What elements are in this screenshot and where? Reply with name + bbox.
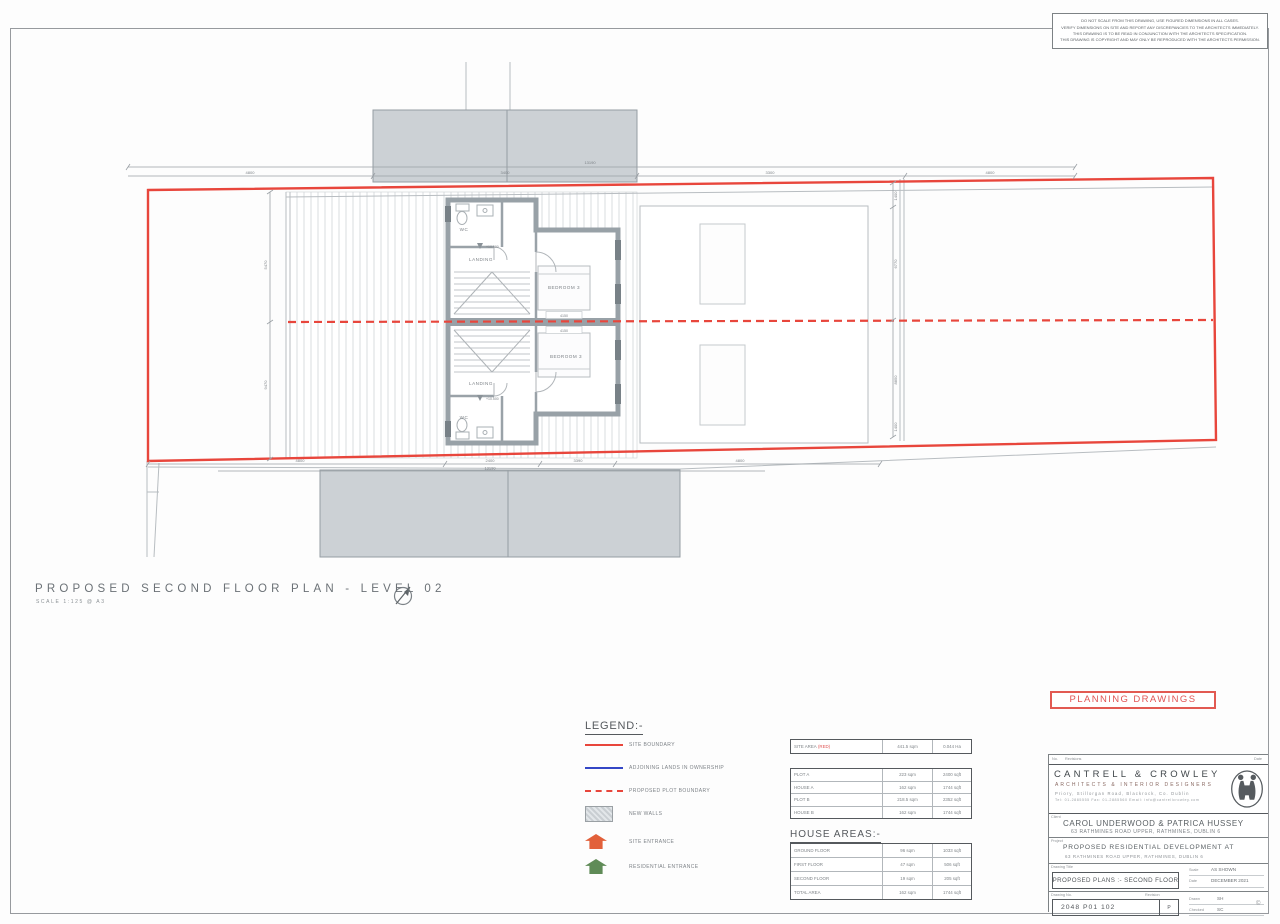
- dim-right: 6770: [893, 259, 898, 269]
- floor-name: SECOND FLOOR: [791, 872, 883, 885]
- plot-boundary-dash-icon: [585, 790, 623, 792]
- legend-label: PROPOSED PLOT BOUNDARY: [629, 788, 710, 794]
- floor-name: GROUND FLOOR: [791, 844, 883, 857]
- dim-bottom-seg: 2400: [486, 458, 496, 463]
- house-areas-table: GROUND FLOOR 96 sqm 1033 sqft FIRST FLOO…: [790, 843, 972, 900]
- table-row: HOUSE B 162 sqm 1744 sqft: [791, 806, 971, 819]
- plot-sqm: 223 sqm: [883, 769, 933, 781]
- client-panel: Client CAROL UNDERWOOD & PATRICA HUSSEY …: [1049, 814, 1268, 838]
- room-label-wc-top: WC: [460, 227, 469, 232]
- table-row: HOUSE A 162 sqm 1744 sqft: [791, 781, 971, 794]
- title-block: No. Revisions Date CANTRELL & CROWLEY AR…: [1048, 754, 1268, 912]
- room-label-wc-bottom: WC: [460, 415, 469, 420]
- legend-heading: LEGEND:-: [585, 720, 643, 735]
- floor-sqft: 1744 sqft: [933, 890, 971, 895]
- table-row: PLOT B 218.5 sqm 2352 sqft: [791, 793, 971, 806]
- table-row: TOTAL AREA 162 sqm 1744 sqft: [791, 885, 971, 899]
- dim-top-seg: 4800: [246, 170, 256, 175]
- checked-label: Checked: [1189, 908, 1204, 912]
- residential-entrance-arrow-icon: [585, 859, 607, 874]
- dim-bottom-seg: 4800: [296, 458, 306, 463]
- dim-left: 5470: [263, 260, 268, 270]
- legend-label: SITE BOUNDARY: [629, 742, 675, 748]
- legend-item-adjoining-lands: ADJOINING LANDS IN OWNERSHIP: [585, 765, 724, 771]
- dim-label: 4150: [560, 329, 568, 333]
- plot-sqm: 218.5 sqm: [883, 794, 933, 806]
- garden-plot: [640, 206, 868, 443]
- plot-name: HOUSE A: [791, 782, 883, 794]
- legend-label: RESIDENTIAL ENTRANCE: [629, 864, 699, 870]
- floor-sqft: 506 sqft: [933, 862, 971, 867]
- drawing-number-panel: Drawing No. Revision 2048 P01 102 P Draw…: [1049, 892, 1268, 918]
- copyright-mark: ©: [1256, 901, 1260, 907]
- dim-top-seg: 3400: [501, 170, 511, 175]
- site-area-label: SITE AREA: [794, 744, 817, 749]
- date-label: Date: [1189, 879, 1197, 883]
- legend-label: SITE ENTRANCE: [629, 839, 674, 845]
- drawing-number-value: 2048 P01 102: [1053, 900, 1159, 915]
- legend-label: ADJOINING LANDS IN OWNERSHIP: [629, 765, 724, 771]
- floor-sqm: 162 sqm: [883, 886, 933, 899]
- table-row: SITE AREA (RED) 441.5 sqm 0.044 Ha: [791, 740, 971, 753]
- dim-right: 1400: [893, 191, 898, 201]
- drawing-title-box: PROPOSED PLANS :- SECOND FLOOR: [1052, 872, 1179, 889]
- plot-sqft: 2352 sqft: [933, 797, 971, 802]
- floor-name: FIRST FLOOR: [791, 858, 883, 871]
- dim-right: 1400: [893, 422, 898, 432]
- project-line1: PROPOSED RESIDENTIAL DEVELOPMENT AT: [1063, 844, 1234, 851]
- room-label-bedroom-bottom: BEDROOM 3: [550, 354, 582, 359]
- plot-sqft: 1744 sqft: [933, 785, 971, 790]
- floor-name: TOTAL AREA: [791, 886, 883, 899]
- house-areas-heading-text: HOUSE AREAS:-: [790, 829, 881, 843]
- site-area-red-tag: (RED): [818, 744, 830, 749]
- plot-sqm: 162 sqm: [883, 807, 933, 819]
- site-area-sqm: 441.5 sqm: [883, 740, 933, 753]
- plot-name: PLOT B: [791, 794, 883, 806]
- divider: [1189, 887, 1264, 888]
- revisions-label: Revisions: [1065, 757, 1081, 761]
- dim-top-seg: 3300: [766, 170, 776, 175]
- dim-bottom-seg: 3390: [574, 458, 584, 463]
- divider: [1189, 915, 1264, 916]
- planning-drawings-stamp: PLANNING DRAWINGS: [1050, 691, 1216, 709]
- dim-label: 4150: [560, 314, 568, 318]
- architect-address: Priory, Stillorgan Road, Blackrock, Co. …: [1055, 791, 1190, 796]
- site-area-ha: 0.044 Ha: [933, 744, 971, 749]
- dim-bottom-seg: 4800: [736, 458, 746, 463]
- legend-item-plot-boundary: PROPOSED PLOT BOUNDARY: [585, 788, 710, 794]
- date-header-label: Date: [1254, 757, 1262, 761]
- floor-sqft: 205 sqft: [933, 876, 971, 881]
- architect-name: CANTRELL & CROWLEY: [1054, 769, 1221, 780]
- roof-block-bottom: [320, 470, 680, 557]
- legend-item-residential-entrance: RESIDENTIAL ENTRANCE: [585, 859, 699, 874]
- drawing-number-label: Drawing No.: [1051, 893, 1072, 897]
- drawn-label: Drawn: [1189, 897, 1200, 901]
- revision-label: Revision: [1145, 893, 1160, 897]
- floor-sqft: 1033 sqft: [933, 848, 971, 853]
- drawing-title-panel: Drawing Title PROPOSED PLANS :- SECOND F…: [1049, 864, 1268, 892]
- architect-contact: Tel: 01-2885555 Fax: 01-2885560 Email: i…: [1055, 798, 1199, 802]
- drawing-title-label: Drawing Title: [1051, 865, 1073, 869]
- plot-name: HOUSE B: [791, 807, 883, 819]
- plot-sqm: 162 sqm: [883, 782, 933, 794]
- drawn-value: SH: [1217, 896, 1223, 901]
- project-line2: 63 RATHMINES ROAD UPPER, RATHMINES, DUBL…: [1065, 854, 1203, 859]
- plan-title: PROPOSED SECOND FLOOR PLAN - LEVEL 02: [35, 583, 446, 595]
- legend-item-site-boundary: SITE BOUNDARY: [585, 742, 675, 748]
- client-name: CAROL UNDERWOOD & PATRICA HUSSEY: [1063, 819, 1244, 828]
- floor-sqm: 96 sqm: [883, 844, 933, 857]
- level-value: +10.500: [486, 397, 499, 401]
- architect-panel: CANTRELL & CROWLEY ARCHITECTS & INTERIOR…: [1049, 764, 1268, 814]
- revision-value: P: [1159, 900, 1178, 915]
- dim-right: 8850: [893, 375, 898, 385]
- scale-label: Scale: [1189, 868, 1199, 872]
- plot-areas-table: PLOT A 223 sqm 2400 sqft HOUSE A 162 sqm…: [790, 768, 972, 819]
- legend-item-site-entrance: SITE ENTRANCE: [585, 834, 674, 849]
- checked-value: SC: [1217, 907, 1223, 912]
- table-row: PLOT A 223 sqm 2400 sqft: [791, 769, 971, 781]
- project-label: Project: [1051, 839, 1063, 843]
- plot-sqft: 2400 sqft: [933, 772, 971, 777]
- floor-plan-drawing: +10.500 +10.500 4150 4150 WC LANDING BED…: [0, 0, 1280, 620]
- room-label-bedroom-top: BEDROOM 3: [548, 285, 580, 290]
- dim-top-seg: 4800: [986, 170, 996, 175]
- dim-top-total: 13190: [584, 160, 596, 165]
- floor-sqm: 19 sqm: [883, 872, 933, 885]
- site-area-table: SITE AREA (RED) 441.5 sqm 0.044 Ha: [790, 739, 972, 754]
- plot-sqft: 1744 sqft: [933, 810, 971, 815]
- legend-label: NEW WALLS: [629, 811, 662, 817]
- no-label: No.: [1052, 757, 1058, 761]
- drawing-number-box: 2048 P01 102 P: [1052, 899, 1179, 916]
- plan-scale-note: SCALE 1:125 @ A3: [36, 599, 106, 605]
- divider: [1189, 904, 1264, 905]
- client-label: Client: [1051, 815, 1061, 819]
- level-value: +10.500: [486, 245, 499, 249]
- table-row: FIRST FLOOR 47 sqm 506 sqft: [791, 857, 971, 871]
- scale-value: AS SHOWN: [1211, 867, 1236, 872]
- plot-name: PLOT A: [791, 769, 883, 781]
- dim-bottom-total: 13190: [484, 466, 496, 471]
- legend-item-new-walls: NEW WALLS: [585, 806, 662, 822]
- architect-subtitle: ARCHITECTS & INTERIOR DESIGNERS: [1055, 782, 1213, 788]
- site-entrance-arrow-icon: [585, 834, 607, 849]
- table-row: SECOND FLOOR 19 sqm 205 sqft: [791, 871, 971, 885]
- room-label-landing-bottom: LANDING: [469, 381, 493, 386]
- project-panel: Project PROPOSED RESIDENTIAL DEVELOPMENT…: [1049, 838, 1268, 864]
- new-walls-swatch-icon: [585, 806, 613, 822]
- house-areas-heading: HOUSE AREAS:-: [790, 824, 881, 843]
- date-value: DECEMBER 2021: [1211, 878, 1249, 883]
- drawing-sheet: DO NOT SCALE FROM THIS DRAWING, USE FIGU…: [0, 0, 1280, 924]
- table-row: GROUND FLOOR 96 sqm 1033 sqft: [791, 844, 971, 857]
- adjoining-lands-line-icon: [585, 767, 623, 769]
- client-address: 63 RATHMINES ROAD UPPER, RATHMINES, DUBL…: [1071, 829, 1221, 835]
- floor-sqm: 47 sqm: [883, 858, 933, 871]
- room-label-landing-top: LANDING: [469, 257, 493, 262]
- divider: [1189, 875, 1264, 876]
- architect-crest-icon: [1229, 768, 1265, 810]
- site-boundary-line-icon: [585, 744, 623, 746]
- dim-left: 9470: [263, 380, 268, 390]
- revisions-header-row: No. Revisions Date: [1049, 755, 1268, 764]
